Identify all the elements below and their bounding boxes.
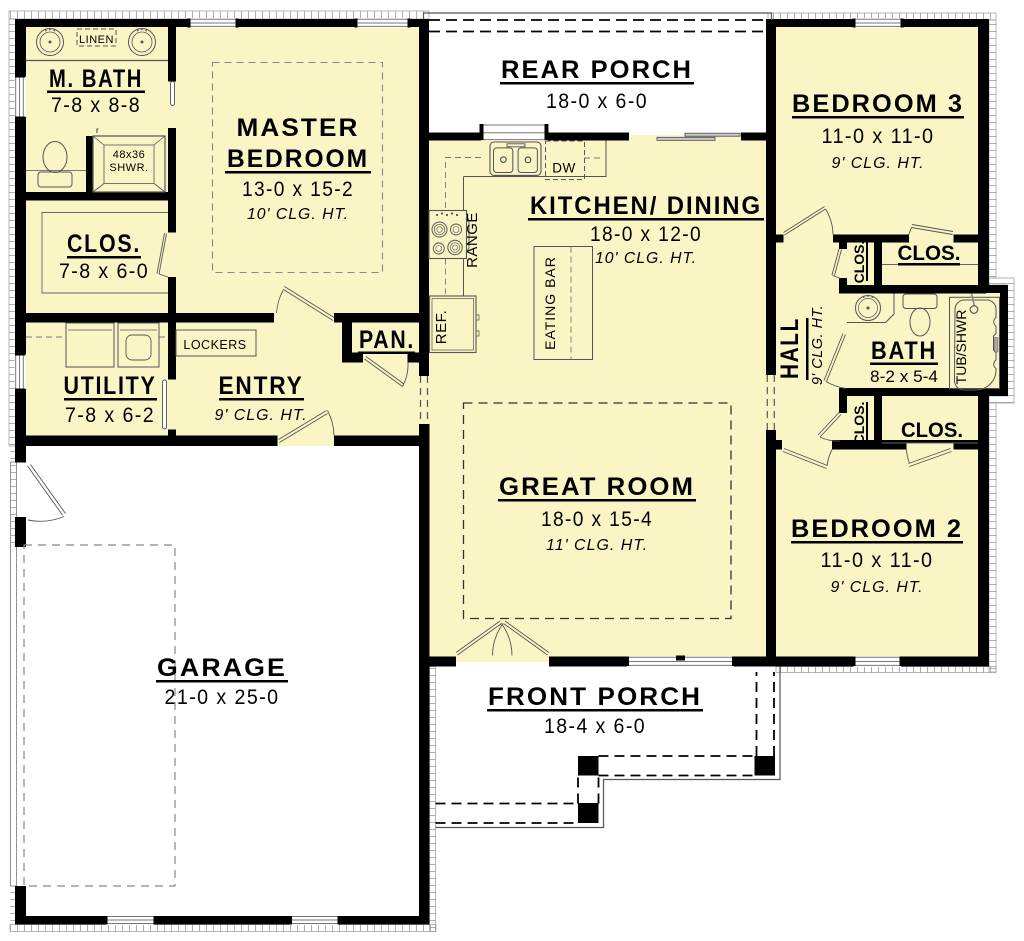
svg-text:CLOS.: CLOS. (67, 230, 141, 258)
svg-text:CLOS.: CLOS. (851, 402, 867, 445)
svg-text:MASTER: MASTER (237, 114, 360, 142)
svg-text:18-0 x 6-0: 18-0 x 6-0 (546, 90, 648, 113)
svg-text:CLOS.: CLOS. (851, 241, 867, 284)
svg-text:BEDROOM: BEDROOM (227, 145, 369, 173)
svg-text:GARAGE: GARAGE (157, 654, 287, 682)
svg-text:EATING BAR: EATING BAR (542, 256, 558, 350)
svg-text:11-0 x 11-0: 11-0 x 11-0 (821, 549, 934, 572)
svg-text:9' CLG. HT.: 9' CLG. HT. (810, 305, 826, 385)
svg-text:21-0 x 25-0: 21-0 x 25-0 (165, 686, 280, 709)
svg-text:DW: DW (552, 161, 576, 176)
svg-text:TUB/SHWR: TUB/SHWR (953, 310, 969, 385)
svg-text:HALL: HALL (776, 317, 804, 379)
svg-text:9' CLG. HT.: 9' CLG. HT. (215, 407, 308, 424)
svg-text:UTILITY: UTILITY (64, 372, 157, 400)
svg-text:18-0 x 15-4: 18-0 x 15-4 (541, 508, 653, 531)
svg-text:PAN.: PAN. (359, 326, 415, 354)
svg-text:10' CLG. HT.: 10' CLG. HT. (595, 250, 697, 267)
svg-text:SHWR.: SHWR. (109, 162, 148, 174)
svg-text:48x36: 48x36 (113, 149, 145, 161)
svg-text:7-8 x 8-8: 7-8 x 8-8 (51, 94, 141, 117)
svg-text:BEDROOM 3: BEDROOM 3 (792, 90, 964, 118)
svg-text:18-4 x 6-0: 18-4 x 6-0 (544, 715, 646, 738)
svg-text:9' CLG. HT.: 9' CLG. HT. (832, 155, 925, 172)
svg-text:13-0 x 15-2: 13-0 x 15-2 (242, 178, 354, 201)
svg-text:REF.: REF. (433, 310, 450, 345)
svg-text:RANGE: RANGE (464, 212, 481, 268)
svg-text:REAR PORCH: REAR PORCH (501, 56, 693, 84)
svg-text:KITCHEN/ DINING: KITCHEN/ DINING (530, 192, 762, 220)
svg-text:CLOS.: CLOS. (901, 419, 963, 442)
svg-text:7-8 x 6-0: 7-8 x 6-0 (59, 260, 149, 283)
svg-text:FRONT PORCH: FRONT PORCH (488, 683, 702, 711)
svg-text:BATH: BATH (871, 337, 937, 365)
svg-text:GREAT ROOM: GREAT ROOM (499, 473, 695, 501)
svg-text:M. BATH: M. BATH (49, 65, 143, 93)
svg-text:7-8 x 6-2: 7-8 x 6-2 (65, 404, 155, 427)
svg-text:11' CLG. HT.: 11' CLG. HT. (546, 537, 648, 554)
svg-text:CLOS.: CLOS. (898, 242, 961, 265)
svg-text:8-2 x 5-4: 8-2 x 5-4 (870, 367, 938, 386)
svg-text:LOCKERS: LOCKERS (183, 338, 246, 352)
svg-text:LINEN: LINEN (79, 34, 114, 46)
svg-text:BEDROOM 2: BEDROOM 2 (791, 515, 963, 543)
svg-text:11-0 x 11-0: 11-0 x 11-0 (822, 125, 935, 148)
svg-text:r: r (96, 126, 99, 135)
svg-text:9' CLG. HT.: 9' CLG. HT. (831, 579, 924, 596)
svg-text:ENTRY: ENTRY (219, 372, 304, 400)
svg-text:18-0 x 12-0: 18-0 x 12-0 (590, 223, 702, 246)
svg-text:10' CLG. HT.: 10' CLG. HT. (247, 206, 349, 223)
